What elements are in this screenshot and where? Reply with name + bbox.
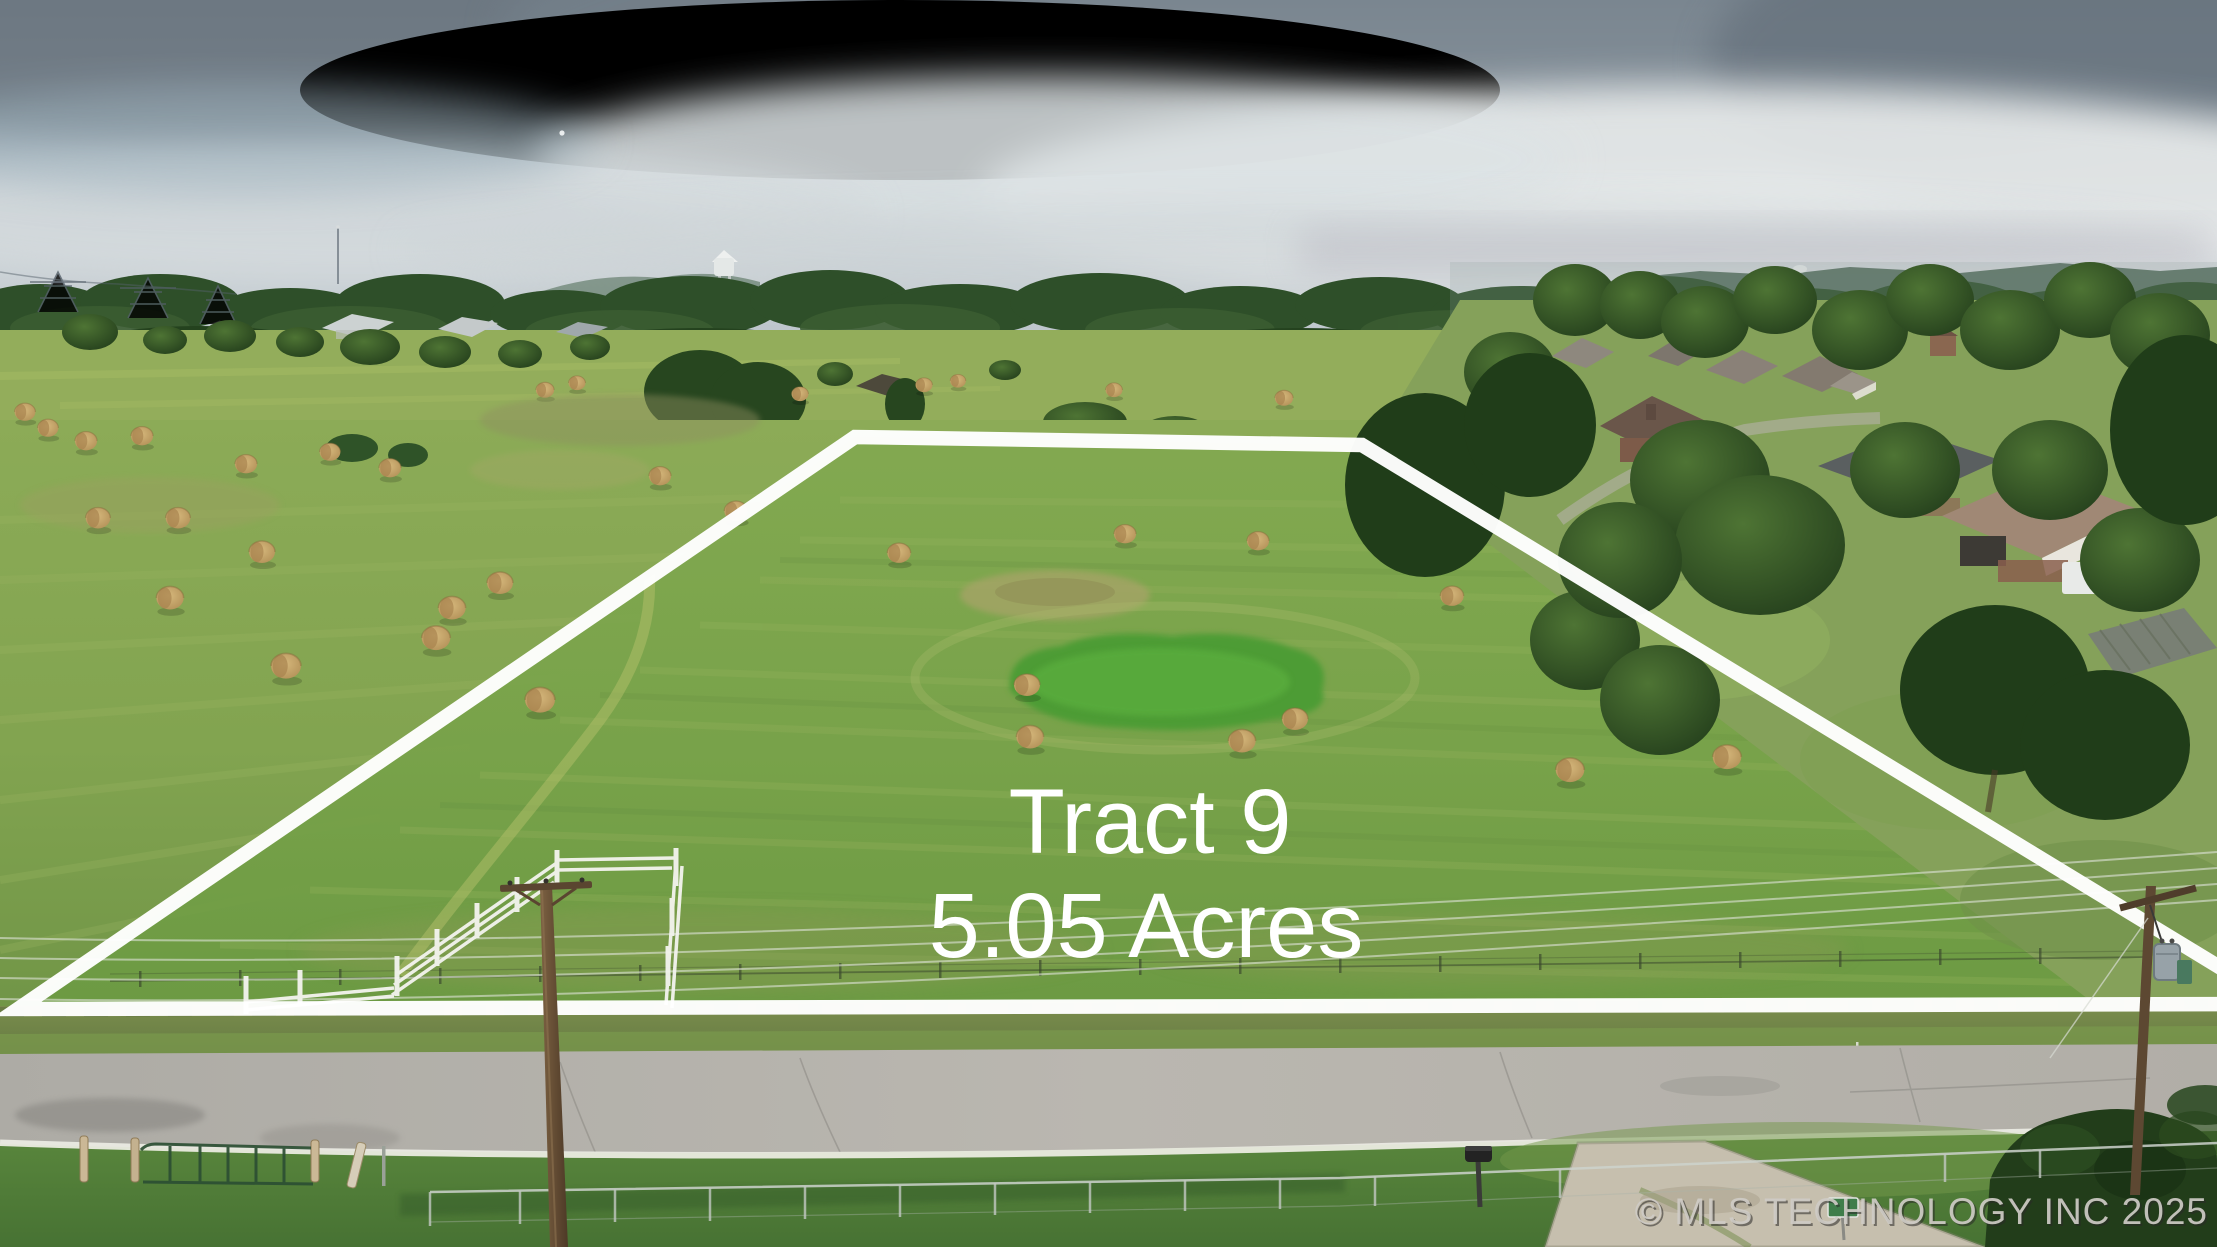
transformer: [2154, 939, 2180, 981]
clouds: [0, 0, 2217, 305]
watermark: © MLS TECHNOLOGY INC 2025 © MLS TECHNOLO…: [1635, 1191, 2210, 1234]
vivid-grass-patch: [1030, 648, 1290, 716]
dry-grass-patch: [470, 450, 650, 490]
watermark-text: © MLS TECHNOLOGY INC 2025: [1635, 1191, 2208, 1232]
tract-label: Tract 9: [1009, 771, 1292, 873]
acreage-label: 5.05 Acres: [929, 875, 1364, 977]
road-wet-patch: [15, 1098, 205, 1132]
distant-bird: [559, 130, 564, 135]
dry-grass-patch: [20, 477, 280, 533]
aerial-photo: Tract 9 5.05 Acres © MLS TECHNOLOGY INC …: [0, 0, 2217, 1247]
photo-canvas: Tract 9 5.05 Acres © MLS TECHNOLOGY INC …: [0, 0, 2217, 1247]
brick-tower: [1930, 334, 1956, 356]
road-wet-patch: [1660, 1076, 1780, 1096]
dry-grass-patch: [480, 394, 760, 446]
dry-grass-patch: [995, 578, 1115, 606]
pole-box: [2177, 960, 2192, 984]
